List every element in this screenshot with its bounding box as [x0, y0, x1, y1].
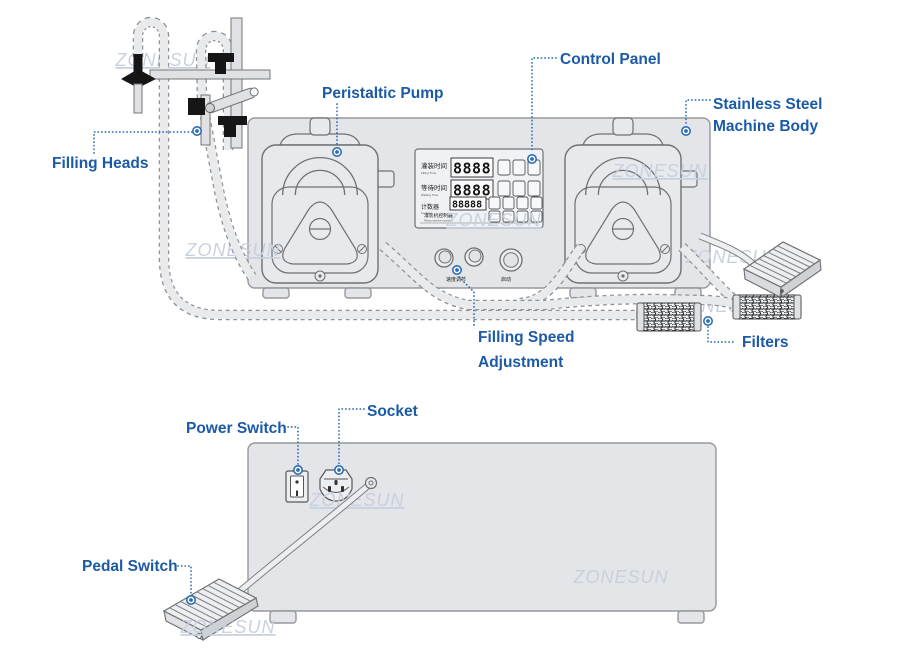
stand-clamp: [224, 116, 236, 137]
machine-foot: [345, 288, 371, 298]
knob-start[interactable]: [500, 249, 522, 271]
label-power-switch: Power Switch: [186, 420, 287, 437]
panel-display-counter: 88888: [452, 200, 482, 211]
panel-button[interactable]: [517, 197, 528, 209]
label-pedal-switch: Pedal Switch: [82, 558, 178, 575]
power-switch[interactable]: [286, 471, 308, 502]
panel-button[interactable]: [498, 160, 510, 175]
panel-button[interactable]: [489, 197, 500, 209]
label-socket: Socket: [367, 403, 418, 420]
pump-machine-diagram: 灌装时间 Filling Time 8888 等待时间 Waiting Time…: [0, 0, 900, 665]
leader-pedal-switch: [178, 566, 191, 594]
label-stainless-line2: Machine Body: [713, 118, 818, 135]
machine-back-body: [248, 443, 716, 623]
leader-filters: [708, 327, 736, 342]
callout-dot-filling-heads: [193, 127, 201, 135]
panel-row2-label-en: Waiting Time: [421, 193, 439, 197]
stand-clamp: [215, 53, 226, 74]
cable-connector: [366, 478, 377, 489]
knob-speed-1[interactable]: [435, 249, 453, 267]
knob-start-label: 启动: [501, 276, 511, 283]
leader-filling-heads: [94, 132, 193, 153]
callout-dot-filling-speed: [453, 266, 461, 274]
label-filling-speed-line1: Filling Speed: [478, 329, 574, 346]
panel-row1-label-zh: 灌装时间: [421, 161, 447, 170]
panel-button[interactable]: [498, 181, 510, 196]
callout-dot-peristaltic-pump: [333, 148, 341, 156]
machine-foot: [678, 611, 704, 623]
callout-dot-power-switch: [294, 466, 302, 474]
watermark: ZONESUN: [179, 617, 275, 637]
label-peristaltic-pump: Peristaltic Pump: [322, 85, 443, 102]
stand-bar: [150, 70, 270, 79]
diagram-canvas: 灌装时间 Filling Time 8888 等待时间 Waiting Time…: [0, 0, 900, 665]
label-filling-heads: Filling Heads: [52, 155, 148, 172]
panel-display-filling-time: 8888: [453, 160, 491, 178]
panel-button[interactable]: [513, 181, 525, 196]
label-filters: Filters: [742, 334, 789, 351]
watermark: ZONESUN: [445, 210, 541, 230]
filling-nozzle-left: [134, 84, 142, 113]
filter-right: [733, 295, 801, 319]
callout-dot-pedal-switch: [187, 596, 195, 604]
knob-speed-label: 速度调节: [446, 276, 466, 283]
callout-dot-stainless-body: [682, 127, 690, 135]
label-control-panel: Control Panel: [560, 51, 661, 68]
watermark: ZONESUN: [572, 567, 668, 587]
nozzle-pivot: [206, 104, 215, 113]
panel-row1-label-en: Filling Time: [421, 171, 437, 175]
panel-button[interactable]: [503, 197, 514, 209]
callout-dot-control-panel: [528, 155, 536, 163]
panel-row2-label-zh: 等待时间: [421, 183, 447, 192]
watermark: ZONESUN: [611, 161, 707, 181]
label-filling-speed-line2: Adjustment: [478, 354, 563, 371]
callout-dot-filters: [704, 317, 712, 325]
stand-clamp: [188, 98, 205, 115]
panel-button[interactable]: [528, 181, 540, 196]
machine-foot: [263, 288, 289, 298]
label-stainless-line1: Stainless Steel: [713, 96, 822, 113]
panel-button[interactable]: [531, 197, 542, 209]
callout-dot-socket: [335, 466, 343, 474]
filter-left: [637, 303, 701, 331]
panel-button[interactable]: [513, 160, 525, 175]
knob-speed-2[interactable]: [465, 248, 483, 266]
panel-row3-label-zh: 计数器: [421, 203, 439, 211]
